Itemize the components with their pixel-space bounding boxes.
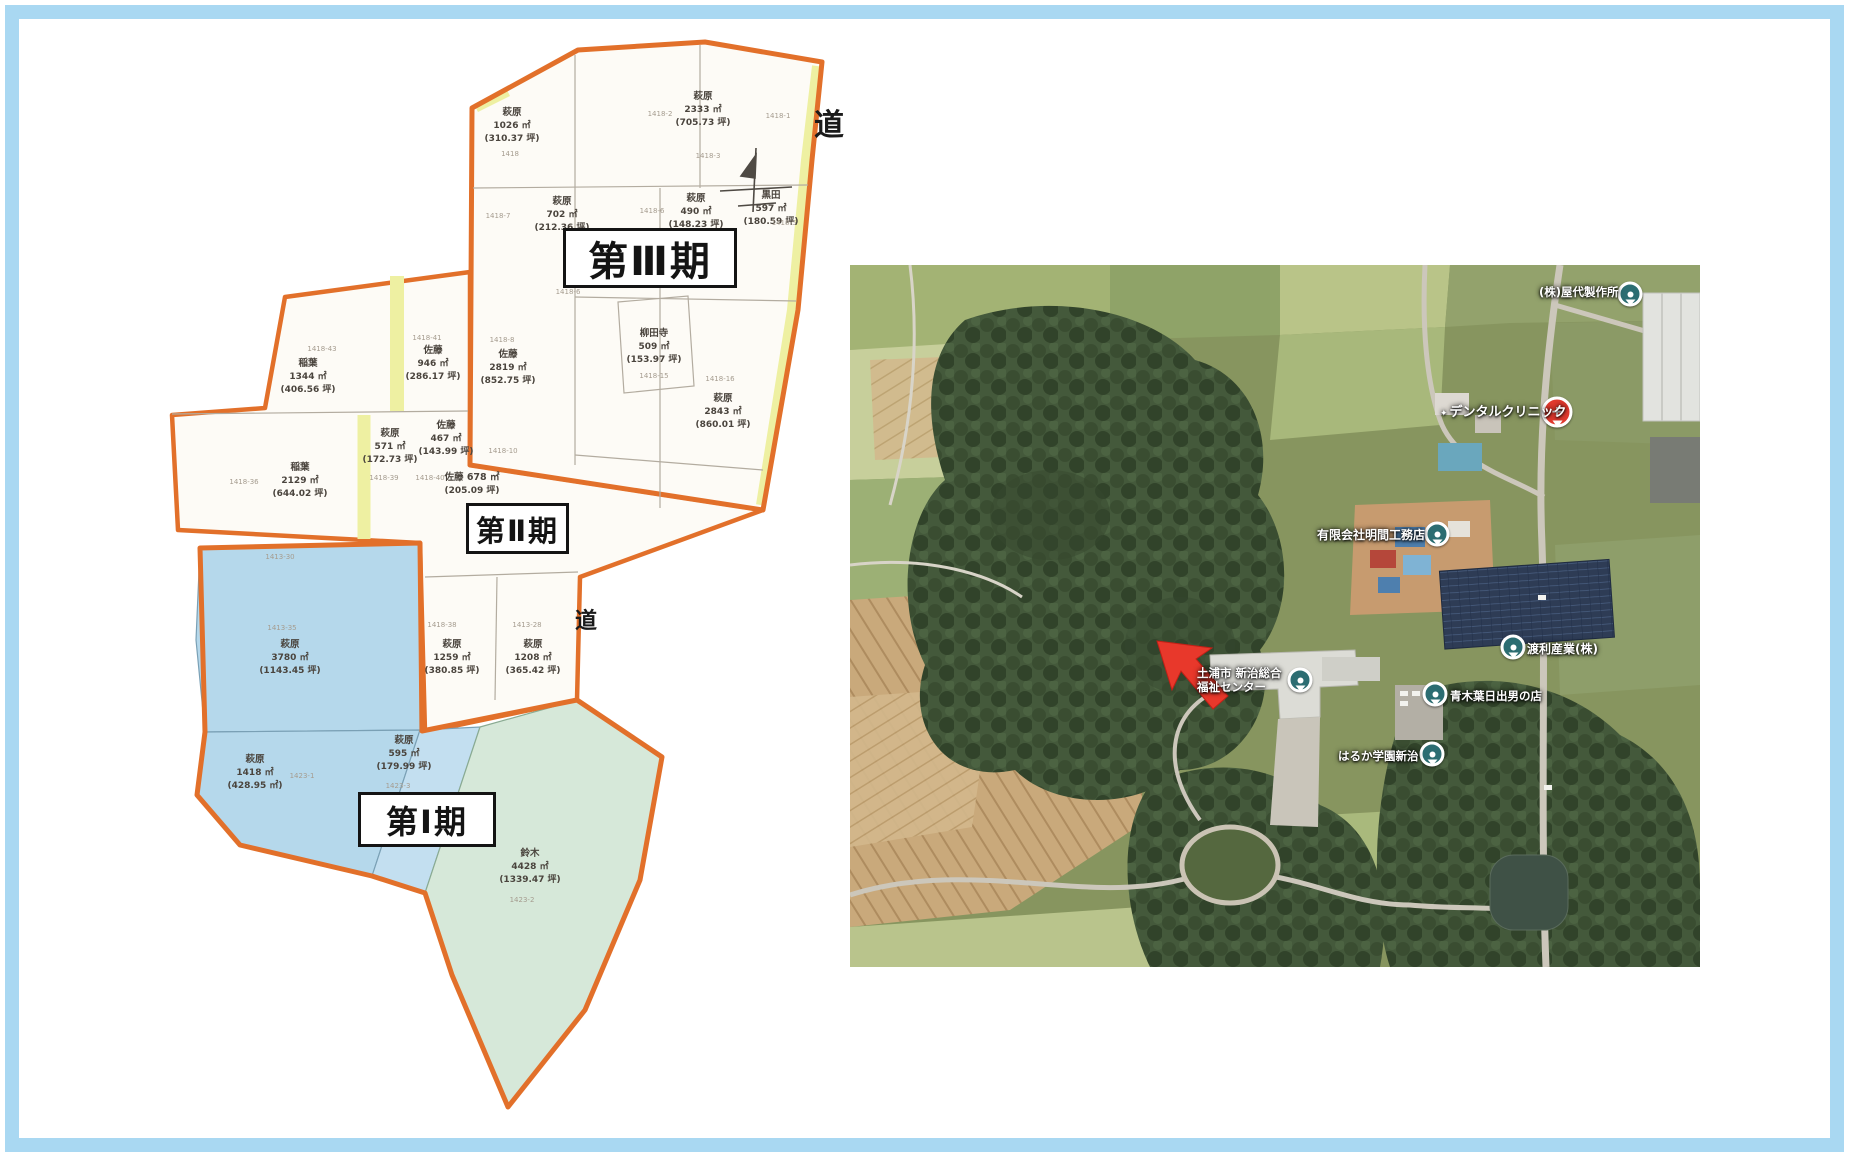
parcel-number: 1423-2 (510, 896, 535, 904)
parcel-label: 萩原3780 ㎡(1143.45 坪) (259, 638, 320, 678)
page: { "frame": { "border_color": "#a9d8f2" }… (0, 0, 1849, 1157)
parcel-label: 鈴木4428 ㎡(1339.47 坪) (499, 847, 560, 887)
parcel-label: 萩原2843 ㎡(860.01 坪) (695, 392, 750, 432)
parcel-number: 1418-10 (488, 447, 517, 455)
parcel-label: 萩原571 ㎡(172.73 坪) (362, 427, 417, 467)
map-place-label: 渡利産業(株) (1527, 642, 1598, 656)
parcel-label: 稲葉2129 ㎡(644.02 坪) (272, 461, 327, 501)
parcel-number: 1413-35 (267, 624, 296, 632)
place-pin-icon (1618, 282, 1643, 307)
phase-label: 第Ⅲ期 (563, 228, 737, 288)
phase-label: 第Ⅱ期 (466, 503, 569, 554)
parcel-number: 1418-16 (705, 375, 734, 383)
road-label: 道 (814, 100, 844, 144)
parcel-label: 萩原1208 ㎡(365.42 坪) (505, 638, 560, 678)
parcel-number: 1418-6 (556, 288, 581, 296)
parcel-label: 萩原1418 ㎡(428.95 ㎡) (227, 753, 282, 793)
parcel-label: 萩原1259 ㎡(380.85 坪) (424, 638, 479, 678)
parcel-label: 佐藤 678 ㎡(205.09 坪) (444, 471, 499, 498)
parcel-label: 佐藤467 ㎡(143.99 坪) (418, 419, 473, 459)
map-place-label: はるか学園新治 (1338, 750, 1419, 764)
parcel-number: 1418-43 (307, 345, 336, 353)
map-place-label: 有限会社明間工務店 (1317, 528, 1425, 542)
parcel-number: 1418-15 (639, 372, 668, 380)
parcel-label: 萩原595 ㎡(179.99 坪) (376, 734, 431, 774)
parcel-number: 1423-1 (290, 772, 315, 780)
parcel-number: 1418-8 (490, 336, 515, 344)
parcel-number: 1418-1 (766, 112, 791, 120)
parcel-number: 1418-6 (640, 207, 665, 215)
road-label: 道 (575, 603, 597, 635)
place-pin-icon (1425, 522, 1450, 547)
parcel-number: 1418 (501, 150, 519, 158)
parcel-label: 萩原1026 ㎡(310.37 坪) (484, 106, 539, 146)
parcel-number: 1418-5 (772, 219, 797, 227)
parcel-number: 1418-38 (427, 621, 456, 629)
parcel-number: 1413-28 (512, 621, 541, 629)
parcel-number: 1418-40 (415, 474, 444, 482)
parcel-label: 萩原490 ㎡(148.23 坪) (668, 192, 723, 232)
parcel-label: 稲葉1344 ㎡(406.56 坪) (280, 357, 335, 397)
parcel-label: 佐藤2819 ㎡(852.75 坪) (480, 348, 535, 388)
parcel-label: 佐藤946 ㎡(286.17 坪) (405, 344, 460, 384)
map-place-label: ✦デンタルクリニック (1440, 405, 1567, 420)
parcel-number: 1418-3 (696, 152, 721, 160)
labels-layer: 萩原1026 ㎡(310.37 坪)萩原2333 ㎡(705.73 坪)萩原70… (0, 0, 1849, 1157)
parcel-label: 柳田寺509 ㎡(153.97 坪) (626, 327, 681, 367)
parcel-number: 1418-41 (412, 334, 441, 342)
phase-label: 第Ⅰ期 (358, 792, 496, 847)
parcel-number: 1423-3 (386, 782, 411, 790)
place-pin-icon (1501, 635, 1526, 660)
place-pin-icon (1288, 668, 1313, 693)
place-pin-icon (1423, 682, 1448, 707)
map-place-label: 土浦市 新治総合 福祉センター (1197, 667, 1282, 694)
parcel-number: 1418-36 (229, 478, 258, 486)
place-pin-icon (1420, 742, 1445, 767)
parcel-number: 1418-2 (648, 110, 673, 118)
parcel-number: 1418-39 (369, 474, 398, 482)
parcel-number: 1413-30 (265, 553, 294, 561)
map-place-label: 青木葉日出男の店 (1450, 690, 1542, 704)
parcel-number: 1418-7 (486, 212, 511, 220)
place-sparkle-icon: ✦ (1440, 409, 1448, 419)
map-place-label: (株)屋代製作所 (1539, 286, 1619, 300)
parcel-label: 萩原2333 ㎡(705.73 坪) (675, 90, 730, 130)
